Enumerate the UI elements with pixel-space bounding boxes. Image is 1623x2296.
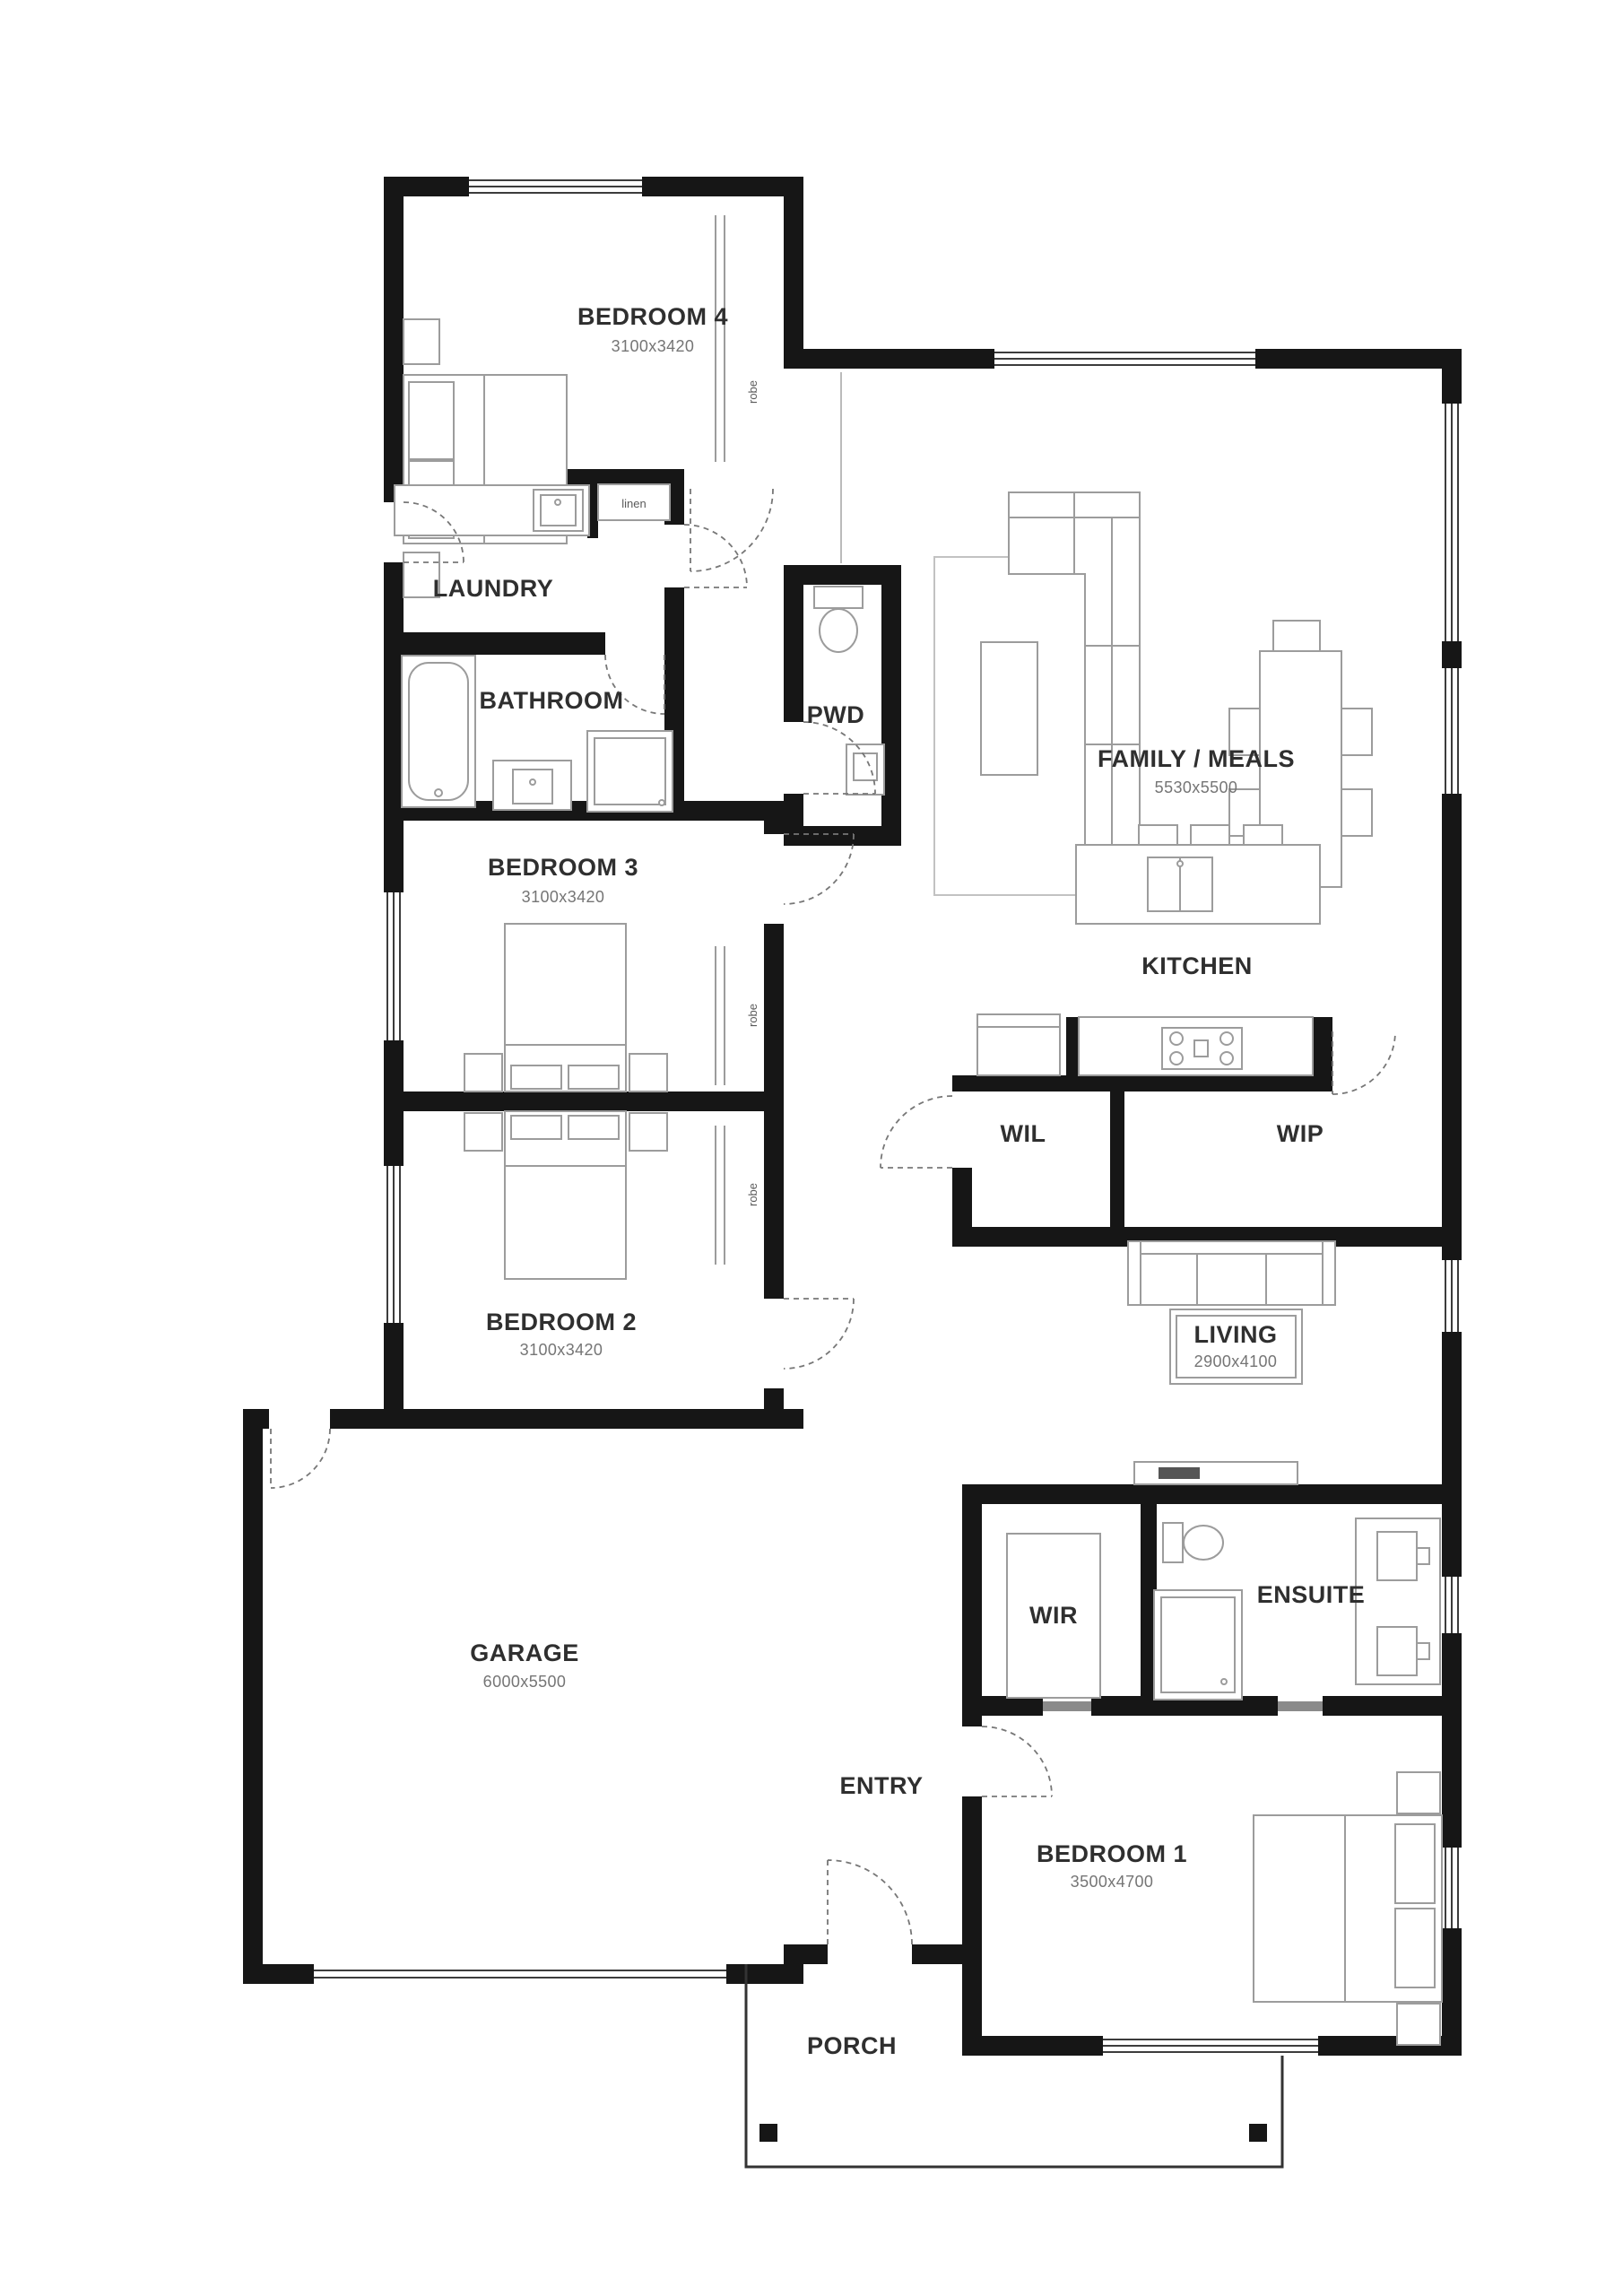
- label-bedroom3: BEDROOM 3: [488, 854, 638, 881]
- robe-bedroom3: [716, 946, 725, 1085]
- label-wip: WIP: [1277, 1120, 1324, 1147]
- door-front: [828, 1860, 912, 1944]
- bed-bedroom3: [464, 924, 667, 1091]
- floor-plan: BEDROOM 4 3100x3420 LAUNDRY linen BATHRO…: [0, 0, 1623, 2296]
- pwd-fixtures: [814, 587, 884, 795]
- label-porch: PORCH: [807, 2032, 897, 2059]
- label-bedroom1: BEDROOM 1: [1037, 1840, 1187, 1867]
- dims-garage: 6000x5500: [483, 1673, 567, 1691]
- floor-plan-page: BEDROOM 4 3100x3420 LAUNDRY linen BATHRO…: [0, 0, 1623, 2296]
- label-bedroom2: BEDROOM 2: [486, 1309, 637, 1335]
- label-robe-bedroom3: robe: [746, 1004, 759, 1027]
- door-wip: [1332, 1031, 1395, 1094]
- label-entry: ENTRY: [839, 1772, 923, 1799]
- dims-bedroom4: 3100x3420: [612, 337, 695, 355]
- label-pwd: PWD: [807, 701, 865, 728]
- porch-outline: [746, 1964, 1282, 2167]
- robe-bedroom2: [716, 1126, 725, 1265]
- bed-bedroom2: [464, 1111, 667, 1279]
- label-kitchen: KITCHEN: [1141, 952, 1253, 979]
- bed-bedroom4: [404, 319, 567, 597]
- bathroom-fixtures: [402, 656, 673, 812]
- family-furniture: [934, 492, 1140, 895]
- label-robe-bedroom4: robe: [746, 380, 759, 404]
- bed-bedroom1: [1254, 1772, 1442, 2045]
- label-bathroom: BATHROOM: [480, 687, 624, 714]
- label-ensuite: ENSUITE: [1257, 1581, 1366, 1608]
- label-wir: WIR: [1029, 1602, 1078, 1629]
- door-bedroom4: [690, 489, 773, 571]
- label-laundry: LAUNDRY: [433, 575, 554, 602]
- label-bedroom4: BEDROOM 4: [577, 303, 728, 330]
- label-garage: GARAGE: [470, 1639, 579, 1666]
- door-bedroom2: [784, 1299, 854, 1369]
- label-robe-bedroom2: robe: [746, 1183, 759, 1206]
- label-linen: linen: [621, 497, 646, 510]
- dims-living: 2900x4100: [1194, 1352, 1278, 1370]
- label-family: FAMILY / MEALS: [1098, 745, 1295, 772]
- door-wil: [881, 1096, 952, 1168]
- kitchen-bench: [977, 1014, 1313, 1075]
- robe-bedroom4: [716, 215, 725, 462]
- dims-bedroom1: 3500x4700: [1071, 1873, 1154, 1891]
- ensuite-fixtures: [1154, 1518, 1440, 1700]
- dims-bedroom2: 3100x3420: [520, 1341, 603, 1359]
- door-garage-side: [271, 1429, 330, 1488]
- label-living: LIVING: [1193, 1321, 1277, 1348]
- dims-bedroom3: 3100x3420: [522, 888, 605, 906]
- door-bedroom1: [982, 1726, 1052, 1796]
- dims-family: 5530x5500: [1155, 778, 1238, 796]
- label-wil: WIL: [1001, 1120, 1046, 1147]
